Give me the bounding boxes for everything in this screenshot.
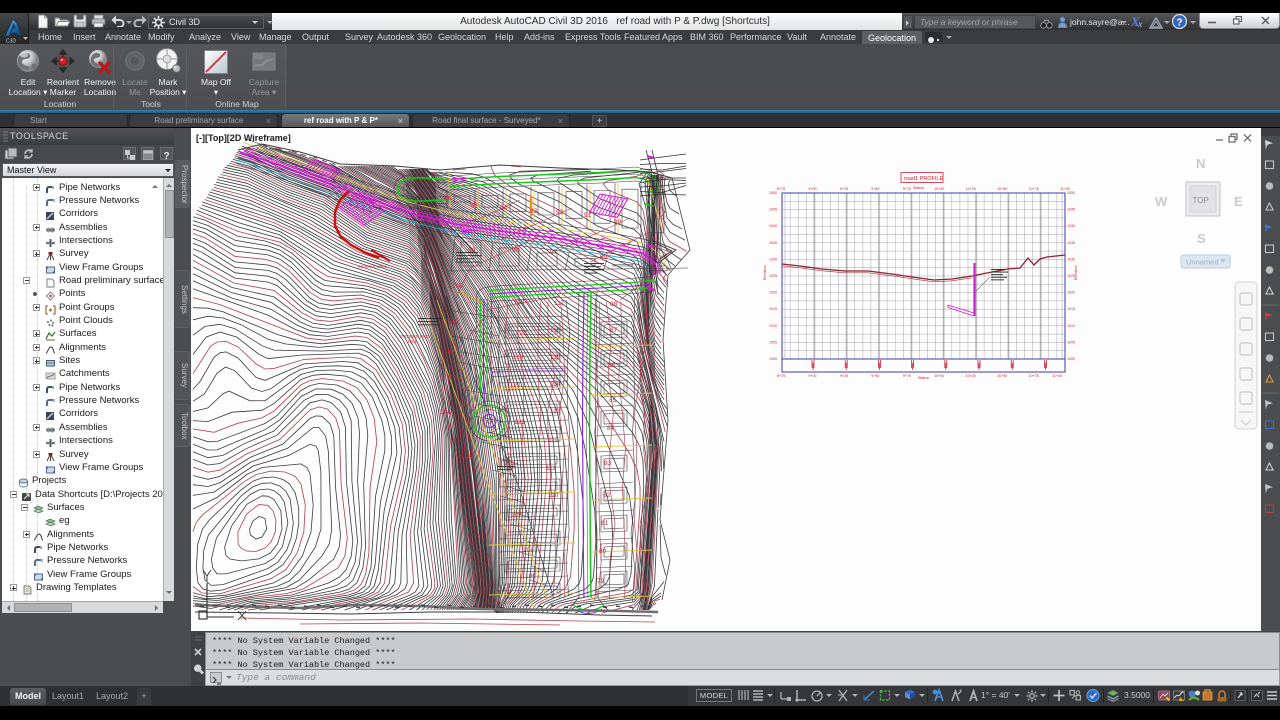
svg-text:121: 121 bbox=[510, 382, 521, 389]
svg-text:9+75: 9+75 bbox=[903, 374, 911, 378]
svg-text:1010: 1010 bbox=[1067, 324, 1075, 328]
svg-text:10+00: 10+00 bbox=[934, 187, 944, 191]
svg-text:x: x bbox=[1137, 19, 1143, 28]
svg-text:1040: 1040 bbox=[1067, 224, 1075, 228]
svg-text:1015: 1015 bbox=[1067, 307, 1075, 311]
svg-text:8+75: 8+75 bbox=[777, 374, 785, 378]
svg-text:110: 110 bbox=[548, 492, 559, 499]
svg-text:101: 101 bbox=[448, 319, 459, 326]
svg-text:117: 117 bbox=[554, 300, 565, 307]
svg-text:10+25: 10+25 bbox=[966, 187, 976, 191]
svg-text:1020: 1020 bbox=[1067, 291, 1075, 295]
svg-text:1045: 1045 bbox=[769, 208, 777, 212]
svg-text:C3D: C3D bbox=[6, 39, 16, 45]
svg-text:10+75: 10+75 bbox=[1029, 187, 1039, 191]
svg-text:1005: 1005 bbox=[769, 340, 777, 344]
svg-text:road1 PROFILE: road1 PROFILE bbox=[904, 176, 943, 182]
svg-text:84: 84 bbox=[607, 425, 615, 432]
svg-text:Unnamed: Unnamed bbox=[1186, 258, 1219, 267]
svg-text:1035: 1035 bbox=[1067, 241, 1075, 245]
svg-text:10+25: 10+25 bbox=[966, 374, 976, 378]
svg-text:98: 98 bbox=[512, 247, 520, 254]
svg-text:1050: 1050 bbox=[1067, 191, 1075, 195]
svg-text:1035: 1035 bbox=[769, 241, 777, 245]
svg-text:10+75: 10+75 bbox=[1029, 374, 1039, 378]
svg-text:90: 90 bbox=[614, 219, 622, 226]
svg-text:No 1: No 1 bbox=[408, 339, 418, 344]
svg-text:116: 116 bbox=[550, 327, 561, 334]
svg-text:102: 102 bbox=[444, 349, 455, 356]
svg-text:113: 113 bbox=[550, 408, 561, 415]
svg-text:106: 106 bbox=[503, 460, 514, 467]
svg-text:9+25: 9+25 bbox=[840, 187, 848, 191]
svg-text:1020: 1020 bbox=[769, 291, 777, 295]
svg-text:91: 91 bbox=[584, 212, 592, 219]
svg-text:10+50: 10+50 bbox=[997, 374, 1007, 378]
svg-text:119: 119 bbox=[513, 354, 524, 361]
svg-text:122: 122 bbox=[514, 419, 525, 426]
svg-text:1000: 1000 bbox=[769, 357, 777, 361]
svg-text:E: E bbox=[1234, 194, 1243, 209]
svg-text:103: 103 bbox=[447, 375, 458, 382]
svg-text:95: 95 bbox=[470, 202, 478, 209]
svg-text:10+50: 10+50 bbox=[997, 187, 1007, 191]
svg-text:120: 120 bbox=[516, 330, 527, 337]
svg-text:[-][Top][2D Wireframe]: [-][Top][2D Wireframe] bbox=[196, 133, 291, 143]
svg-text:115: 115 bbox=[550, 354, 561, 361]
svg-text:W: W bbox=[1155, 194, 1168, 209]
svg-text:89: 89 bbox=[600, 254, 608, 261]
svg-text:107: 107 bbox=[511, 512, 522, 519]
svg-text:79: 79 bbox=[597, 578, 605, 585]
svg-text:8+75: 8+75 bbox=[777, 187, 785, 191]
svg-text:99: 99 bbox=[468, 247, 476, 254]
svg-text:10+00: 10+00 bbox=[934, 374, 944, 378]
svg-text:80: 80 bbox=[599, 548, 607, 555]
svg-text:112: 112 bbox=[548, 437, 559, 444]
svg-text:Elevation: Elevation bbox=[763, 265, 767, 280]
svg-text:81: 81 bbox=[601, 520, 609, 527]
svg-text:Elevation: Elevation bbox=[1074, 265, 1078, 280]
svg-text:1015: 1015 bbox=[769, 307, 777, 311]
svg-text:9+25: 9+25 bbox=[840, 374, 848, 378]
svg-text:109: 109 bbox=[525, 573, 536, 580]
svg-text:108: 108 bbox=[523, 547, 534, 554]
svg-text:92: 92 bbox=[556, 209, 564, 216]
svg-text:9+00: 9+00 bbox=[808, 374, 816, 378]
svg-text:96: 96 bbox=[444, 195, 452, 202]
svg-text:9+50: 9+50 bbox=[871, 374, 879, 378]
svg-text:9+75: 9+75 bbox=[903, 187, 911, 191]
svg-text:1040: 1040 bbox=[769, 224, 777, 228]
svg-text:87: 87 bbox=[610, 327, 618, 334]
svg-text:1030: 1030 bbox=[769, 257, 777, 261]
svg-text:11+00: 11+00 bbox=[1052, 374, 1062, 378]
svg-text:9+50: 9+50 bbox=[871, 187, 879, 191]
svg-text:1025: 1025 bbox=[769, 274, 777, 278]
svg-text:?: ? bbox=[164, 151, 170, 161]
svg-text:100: 100 bbox=[452, 283, 463, 290]
svg-text:83: 83 bbox=[604, 460, 612, 467]
svg-text:104: 104 bbox=[440, 409, 451, 416]
svg-text:93: 93 bbox=[530, 208, 538, 215]
svg-text:86: 86 bbox=[608, 362, 616, 369]
svg-text:RESERVE AREA: RESERVE AREA bbox=[358, 265, 388, 269]
svg-text:1050: 1050 bbox=[769, 191, 777, 195]
svg-text:85: 85 bbox=[609, 397, 617, 404]
svg-text:Station: Station bbox=[918, 376, 929, 380]
svg-text:TOP: TOP bbox=[1193, 196, 1209, 205]
svg-text:111: 111 bbox=[546, 465, 556, 472]
svg-text:1005: 1005 bbox=[1067, 340, 1075, 344]
svg-text:S: S bbox=[1197, 231, 1206, 246]
svg-text:1030: 1030 bbox=[1067, 257, 1075, 261]
svg-text:1000: 1000 bbox=[1067, 357, 1075, 361]
svg-text:94: 94 bbox=[500, 205, 508, 212]
svg-text:?: ? bbox=[1177, 18, 1183, 29]
svg-text:1010: 1010 bbox=[769, 324, 777, 328]
svg-text:Station: Station bbox=[913, 186, 924, 190]
svg-text:88: 88 bbox=[610, 301, 618, 308]
svg-text:1045: 1045 bbox=[1067, 208, 1075, 212]
svg-text:N: N bbox=[1196, 156, 1205, 171]
svg-text:9+00: 9+00 bbox=[808, 187, 816, 191]
svg-text:82: 82 bbox=[603, 492, 611, 499]
svg-text:97: 97 bbox=[550, 249, 558, 256]
svg-text:114: 114 bbox=[550, 381, 561, 388]
svg-text:118: 118 bbox=[514, 299, 525, 306]
svg-text:105: 105 bbox=[461, 454, 472, 461]
